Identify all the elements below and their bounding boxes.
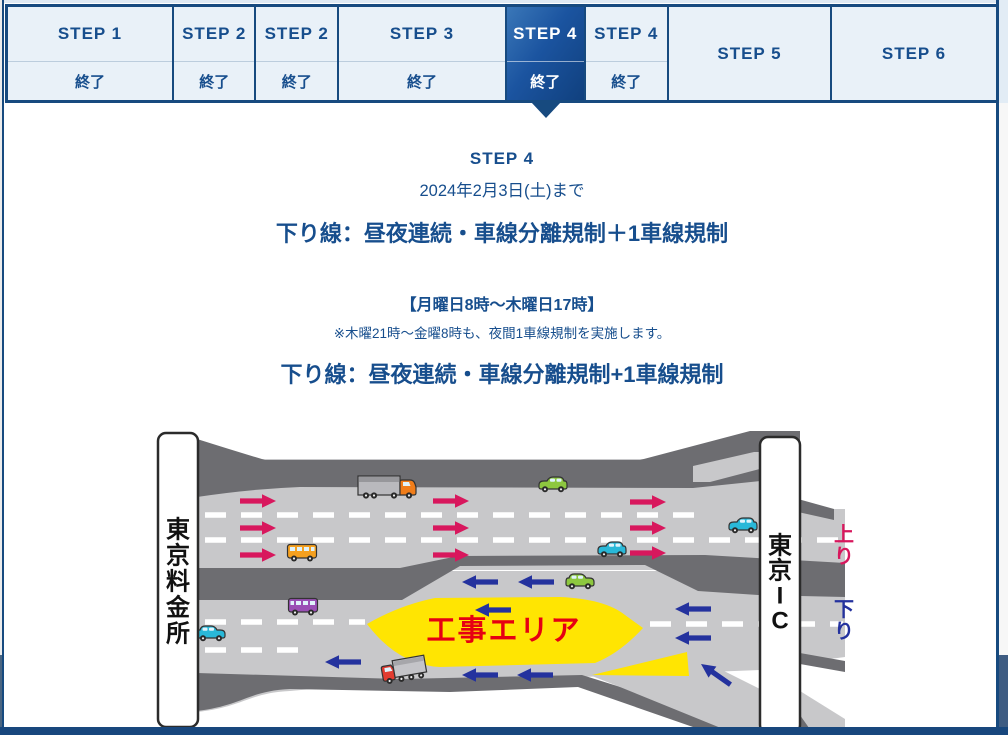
top-edge-strip bbox=[0, 0, 1008, 3]
step-status: 終了 bbox=[256, 61, 337, 100]
step-status: 終了 bbox=[586, 61, 668, 100]
tokyo-ic-sign: 東 京 I C bbox=[760, 437, 800, 733]
svg-text:東: 東 bbox=[768, 533, 792, 560]
svg-text:所: 所 bbox=[166, 621, 190, 648]
step-label: STEP 3 bbox=[339, 7, 505, 61]
step-label: STEP 4 bbox=[586, 7, 668, 61]
step-status: 終了 bbox=[507, 61, 584, 100]
bottom-divider-bar bbox=[0, 727, 1008, 735]
selected-step-pointer-icon bbox=[531, 102, 561, 118]
up-line-label: 上 り bbox=[834, 523, 854, 568]
svg-text:り: り bbox=[834, 546, 854, 568]
step-tab-7[interactable]: STEP 5 bbox=[669, 7, 832, 100]
step-label: STEP 4 bbox=[507, 7, 584, 61]
step-tab-5-selected[interactable]: STEP 4 終了 bbox=[507, 7, 586, 100]
svg-text:金: 金 bbox=[165, 594, 191, 622]
right-edge-lower bbox=[999, 655, 1008, 735]
steps-table: STEP 1 終了 STEP 2 終了 STEP 2 終了 STEP 3 終了 … bbox=[5, 4, 999, 103]
diagram-title: 下り線：昼夜連続・車線分離規制+1車線規制 bbox=[0, 357, 1004, 389]
svg-text:京: 京 bbox=[768, 557, 792, 585]
svg-text:I: I bbox=[777, 583, 784, 610]
svg-text:東: 東 bbox=[166, 517, 190, 544]
step-heading: STEP 4 bbox=[0, 149, 1004, 169]
step-status: 終了 bbox=[174, 61, 255, 100]
road-regulation-diagram: 工事エリア bbox=[150, 425, 855, 735]
step-tab-8[interactable]: STEP 6 bbox=[832, 7, 996, 100]
step-tab-6[interactable]: STEP 4 終了 bbox=[586, 7, 670, 100]
step-label: STEP 2 bbox=[256, 7, 337, 61]
step-label: STEP 1 bbox=[8, 7, 172, 61]
svg-text:料: 料 bbox=[166, 569, 190, 596]
schedule-text: 【月曜日8時～木曜日17時】 bbox=[0, 291, 1004, 315]
step-status: 終了 bbox=[8, 61, 172, 100]
down-line-label: 下 り bbox=[834, 599, 854, 643]
step-label: STEP 6 bbox=[832, 7, 996, 100]
step-tab-2[interactable]: STEP 2 終了 bbox=[174, 7, 257, 100]
step-tab-3[interactable]: STEP 2 終了 bbox=[256, 7, 339, 100]
note-text: ※木曜21時～金曜8時も、夜間1車線規制を実施します。 bbox=[0, 322, 1004, 342]
svg-text:上: 上 bbox=[834, 523, 854, 546]
step-tab-1[interactable]: STEP 1 終了 bbox=[8, 7, 174, 100]
work-area-label: 工事エリア bbox=[426, 614, 581, 647]
svg-text:C: C bbox=[771, 608, 788, 635]
svg-text:下: 下 bbox=[834, 599, 854, 621]
svg-text:り: り bbox=[834, 621, 854, 643]
step-label: STEP 2 bbox=[174, 7, 255, 61]
period-text: 2024年2月3日(土)まで bbox=[0, 177, 1004, 201]
right-edge bbox=[999, 0, 1008, 103]
toll-gate-sign: 東 京 料 金 所 bbox=[158, 433, 198, 727]
svg-text:京: 京 bbox=[166, 542, 190, 570]
regulation-headline: 下り線：昼夜連続・車線分離規制＋1車線規制 bbox=[0, 216, 1004, 248]
step-tab-4[interactable]: STEP 3 終了 bbox=[339, 7, 507, 100]
step-label: STEP 5 bbox=[669, 7, 830, 100]
step-status: 終了 bbox=[339, 61, 505, 100]
